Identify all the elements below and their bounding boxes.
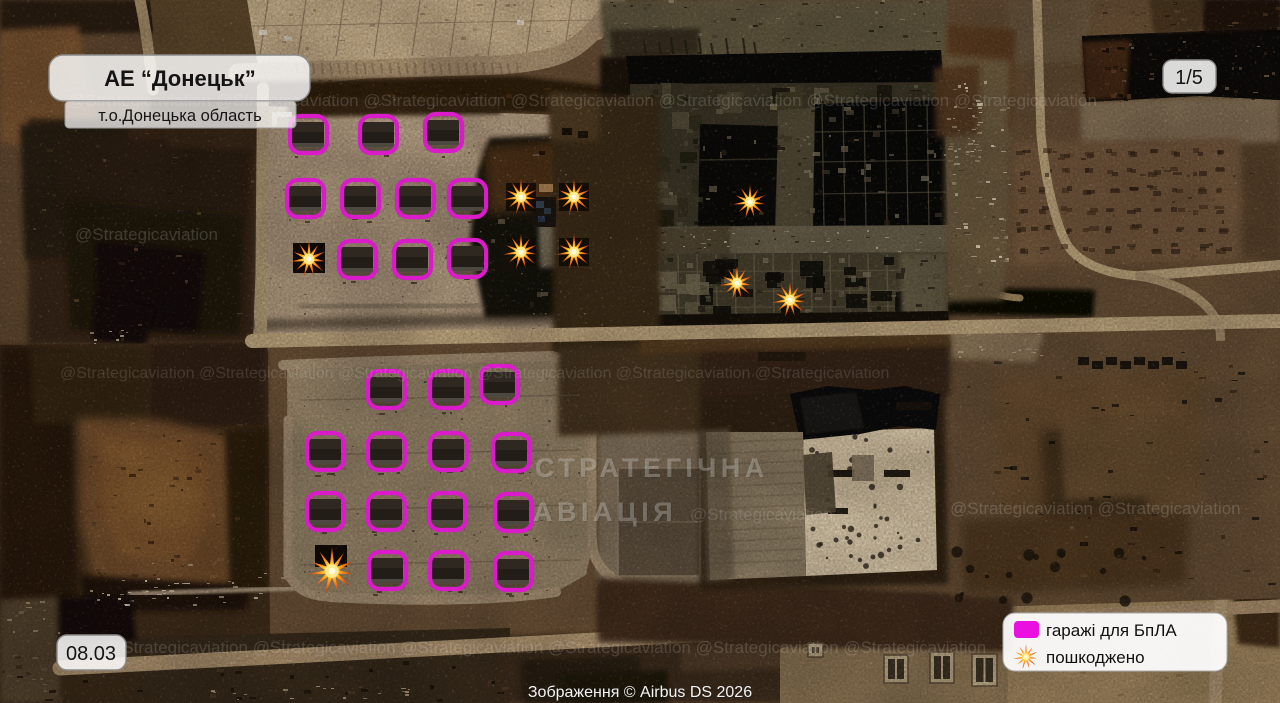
svg-text:@Strategicaviation: @Strategicaviation bbox=[690, 505, 833, 524]
svg-text:СТРАТЕГІЧНА: СТРАТЕГІЧНА bbox=[535, 453, 769, 483]
svg-text:АЕ “Донецьк”: АЕ “Донецьк” bbox=[104, 66, 256, 91]
svg-text:т.о.Донецька область: т.о.Донецька область bbox=[98, 107, 261, 125]
svg-text:@Strategicaviation @Strategic: @Strategicaviation @Strategicaviation bbox=[950, 499, 1241, 518]
svg-text:@Strategicaviation @Strategi: @Strategicaviation @Strategicaviation @S… bbox=[60, 365, 889, 382]
svg-text:пошкоджено: пошкоджено bbox=[1046, 648, 1145, 667]
svg-text:1/5: 1/5 bbox=[1175, 67, 1203, 89]
svg-text:гаражі для БпЛА: гаражі для БпЛА bbox=[1046, 621, 1177, 640]
svg-text:АВІАЦІЯ: АВІАЦІЯ bbox=[533, 497, 677, 527]
svg-text:08.03: 08.03 bbox=[66, 643, 116, 665]
svg-text:@Strategicaviation: @Strategicaviation bbox=[75, 225, 218, 244]
svg-text:@Strategicaviation @Strategi: @Strategicaviation @Strategicaviation @S… bbox=[105, 638, 986, 657]
svg-text:Зображення © Airbus DS 2026: Зображення © Airbus DS 2026 bbox=[528, 684, 752, 701]
